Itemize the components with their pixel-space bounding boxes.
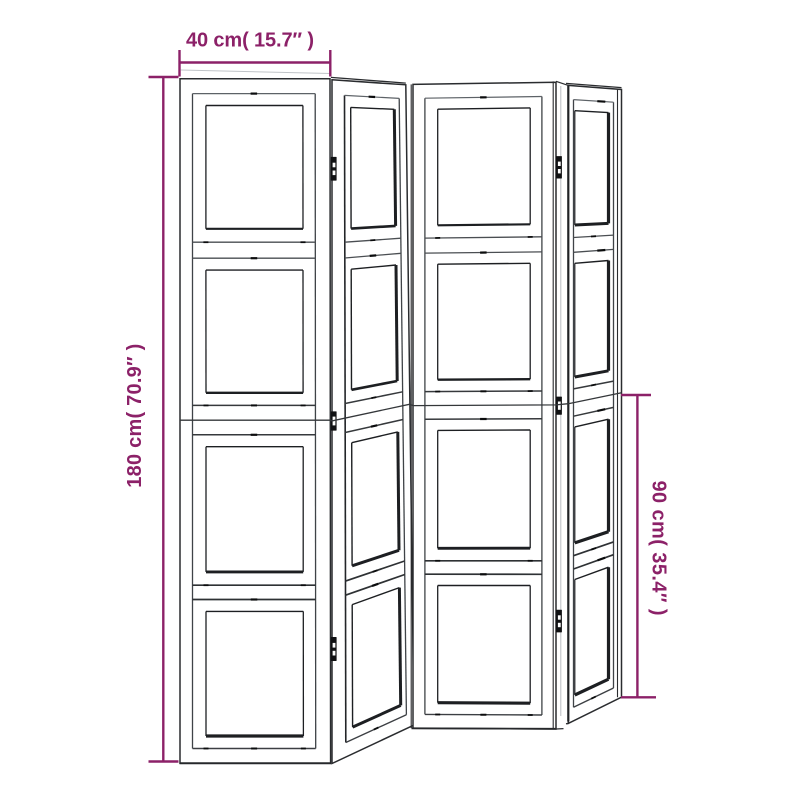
svg-text:180 cm( 70.9″ ): 180 cm( 70.9″ )	[124, 344, 146, 488]
svg-text:90 cm( 35.4″ ): 90 cm( 35.4″ )	[648, 481, 670, 616]
svg-text:40 cm( 15.7″ ): 40 cm( 15.7″ )	[186, 30, 314, 52]
